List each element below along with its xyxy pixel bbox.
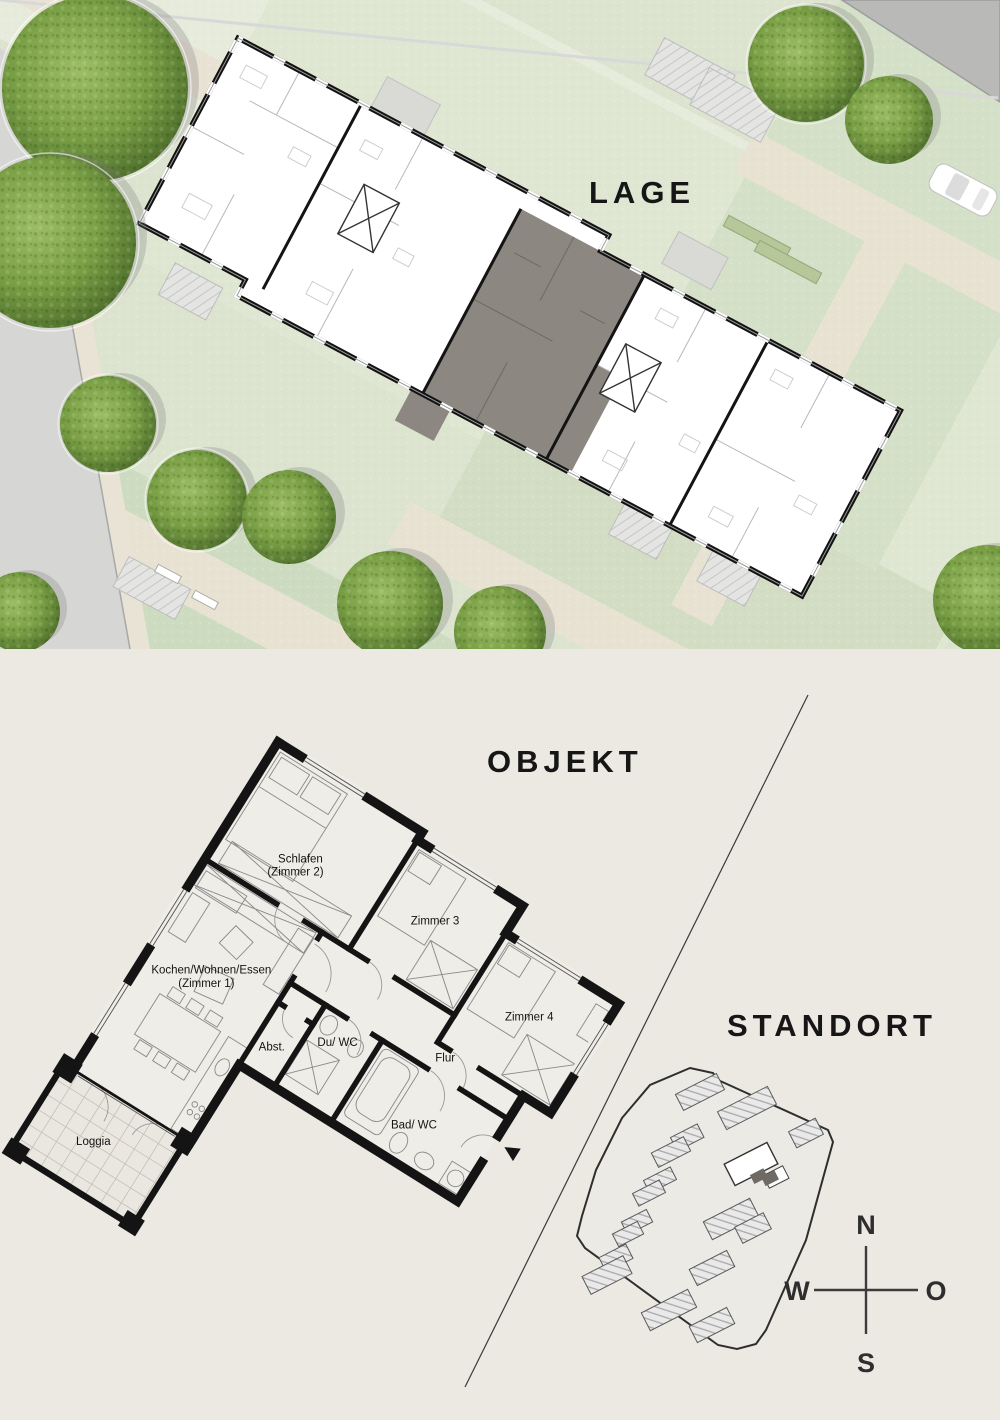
label-loggia: Loggia [76,1136,111,1148]
label-zimmer4: Zimmer 4 [505,1011,554,1023]
label-abst: Abst. [259,1042,285,1054]
objekt-title: OBJEKT [487,744,643,779]
brochure-page: LAGE OBJEKT STANDORT [0,0,1000,1420]
label-schlafen2: (Zimmer 2) [267,867,323,879]
standort-title: STANDORT [727,1008,937,1043]
floorplan-sheet: LAGE OBJEKT STANDORT [0,0,1000,1420]
label-zimmer3: Zimmer 3 [411,916,460,928]
compass-west: W [784,1276,810,1306]
label-flur: Flur [435,1052,455,1064]
label-badwc: Bad/ WC [391,1120,437,1132]
lage-title: LAGE [589,175,695,210]
compass-south: S [857,1348,875,1378]
label-kochen2: (Zimmer 1) [178,978,234,990]
compass-east: O [925,1276,946,1306]
label-duwc: Du/ WC [317,1037,357,1049]
label-kochen: Kochen/Wohnen/Essen [151,965,271,977]
compass-north: N [856,1210,876,1240]
label-schlafen: Schlafen [278,853,323,865]
